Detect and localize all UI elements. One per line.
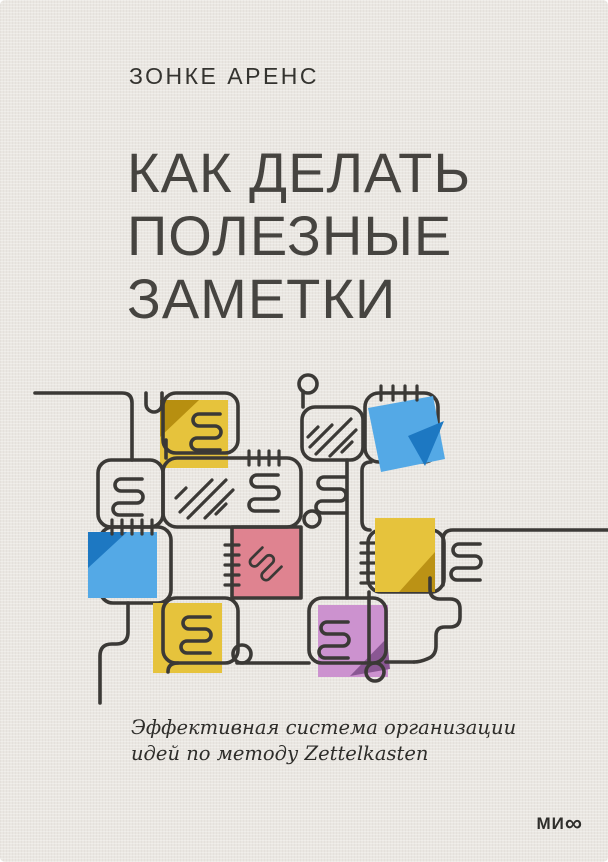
author-name: ЗОНКЕ АРЕНС bbox=[129, 63, 319, 90]
book-title: КАК ДЕЛАТЬ ПОЛЕЗНЫЕ ЗАМЕТКИ bbox=[127, 141, 471, 330]
sticky-notes bbox=[88, 396, 445, 677]
squiggle-center-card bbox=[249, 475, 279, 511]
squiggle-right bbox=[451, 544, 481, 580]
squiggle-left-card bbox=[113, 479, 143, 515]
zettelkasten-illustration bbox=[0, 363, 608, 713]
subtitle-line-1: Эффективная система организации bbox=[131, 715, 516, 741]
title-line-1: КАК ДЕЛАТЬ bbox=[127, 141, 471, 204]
sticky-note-blue-top-right bbox=[368, 396, 445, 472]
subtitle-line-2: идей по методу Zettelkasten bbox=[131, 741, 516, 767]
squiggle-mid-link bbox=[316, 477, 346, 513]
subtitle: Эффективная система организации идей по … bbox=[131, 715, 516, 767]
book-cover: ЗОНКЕ АРЕНС КАК ДЕЛАТЬ ПОЛЕЗНЫЕ ЗАМЕТКИ bbox=[0, 0, 608, 862]
sticky-note-purple-bottom bbox=[318, 605, 390, 677]
title-line-3: ЗАМЕТКИ bbox=[127, 267, 471, 330]
sticky-note-yellow-right bbox=[375, 518, 435, 592]
title-line-2: ПОЛЕЗНЫЕ bbox=[127, 204, 471, 267]
infinity-icon: ∞ bbox=[565, 810, 582, 837]
sticky-note-pink-center bbox=[232, 527, 301, 598]
publisher-logo-letters: МИ bbox=[537, 814, 565, 833]
publisher-logo: МИ∞ bbox=[537, 810, 583, 838]
sticky-note-blue-left bbox=[88, 532, 157, 598]
